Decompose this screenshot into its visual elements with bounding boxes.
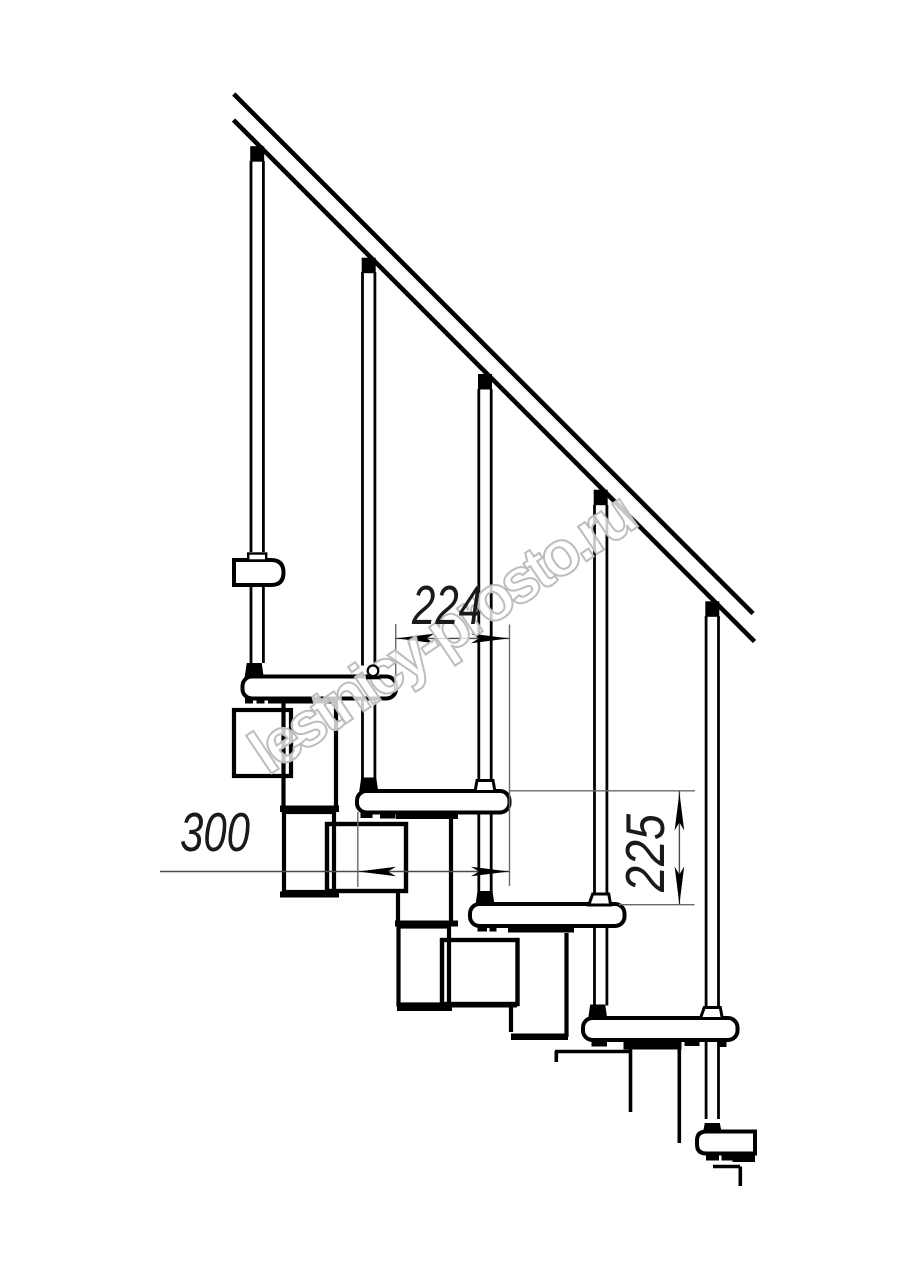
svg-text:224: 224 — [411, 574, 482, 636]
svg-text:225: 225 — [614, 814, 676, 893]
svg-text:300: 300 — [180, 801, 250, 863]
